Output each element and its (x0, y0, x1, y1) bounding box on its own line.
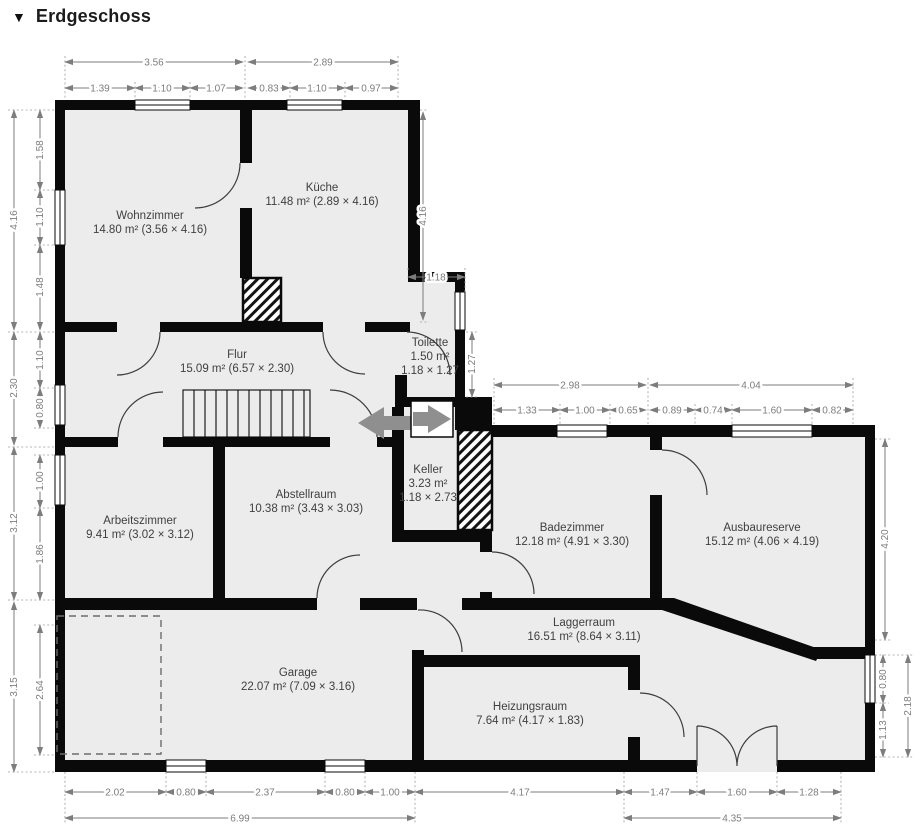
chimney-hatch (243, 278, 281, 322)
dim-top-sub-3: 0.83 (259, 84, 279, 95)
room-size-keller: 1.18 × 2.73 (399, 492, 457, 504)
dim-right-2: 4.20 (880, 529, 891, 549)
dim-wing-sub-6: 0.82 (822, 406, 842, 417)
room-area-wohnzimmer: 14.80 m² (3.56 × 4.16) (93, 224, 207, 236)
dim-wing-sub-4: 0.74 (703, 406, 723, 417)
room-area-heizungsraum: 7.64 m² (4.17 × 1.83) (476, 715, 584, 727)
dim-left-1: 2.30 (9, 378, 20, 398)
room-area-garage: 22.07 m² (7.09 × 3.16) (241, 681, 355, 693)
dim-top-sub-1: 1.10 (152, 84, 172, 95)
dim-left-3: 3.15 (9, 677, 20, 697)
dim-bottom-2: 2.37 (255, 788, 275, 799)
room-label-kueche: Küche (306, 182, 339, 194)
dim-top-0: 3.56 (144, 58, 164, 69)
floorplan-page: ▼ Erdgeschoss (0, 0, 920, 833)
room-label-flur: Flur (227, 349, 247, 361)
dim-top-1: 2.89 (313, 58, 333, 69)
dim-bottom-4: 1.00 (380, 788, 400, 799)
room-area-abstellraum: 10.38 m² (3.43 × 3.03) (249, 503, 363, 515)
dim-bottom-6: 1.47 (650, 788, 670, 799)
room-area-flur: 15.09 m² (6.57 × 2.30) (180, 363, 294, 375)
dim-left-sub-5: 1.00 (35, 471, 46, 491)
dim-left-0: 4.16 (9, 210, 20, 230)
dim-toilette-width: 1.18 (426, 273, 446, 284)
room-label-abstellraum: Abstellraum (276, 489, 337, 501)
cellar-entry-symbol (411, 401, 453, 437)
dim-right-5: 2.18 (903, 696, 914, 716)
dim-bottom-1: 0.80 (176, 788, 196, 799)
dim-bottom-5: 4.17 (510, 788, 530, 799)
collapse-triangle-icon[interactable]: ▼ (12, 9, 26, 25)
dim-right-0: 4.16 (418, 206, 429, 226)
dim-top-sub-5: 0.97 (361, 84, 381, 95)
dim-left-sub-1: 1.10 (35, 207, 46, 227)
dim-bottom-7: 1.60 (727, 788, 747, 799)
dim-left-sub-6: 1.86 (35, 544, 46, 564)
floorplan-drawing: 3.56 2.89 1.39 1.10 1.07 0.83 1.10 0.97 … (0, 0, 920, 833)
dim-wing-sub-1: 1.00 (575, 406, 595, 417)
dim-wing-top-1: 4.04 (741, 381, 761, 392)
room-label-badezimmer: Badezimmer (540, 522, 605, 534)
dim-left-2: 3.12 (9, 513, 20, 533)
dim-bottom-8: 1.28 (799, 788, 819, 799)
room-area-ausbaureserve: 15.12 m² (4.06 × 4.19) (705, 536, 819, 548)
dim-wing-sub-3: 0.89 (662, 406, 682, 417)
keller-hatched-wall (458, 430, 492, 530)
room-area-keller: 3.23 m² (409, 478, 448, 490)
dim-left-sub-7: 2.64 (35, 680, 46, 700)
room-label-ausbaureserve: Ausbaureserve (723, 522, 800, 534)
dim-left-sub-4: 0.80 (35, 398, 46, 418)
dim-top-sub-4: 1.10 (307, 84, 327, 95)
dim-bottom-total-0: 6.99 (230, 814, 250, 825)
room-area-toilette: 1.50 m² (411, 351, 450, 363)
room-label-laggerraum: Laggerraum (553, 617, 615, 629)
room-label-heizungsraum: Heizungsraum (493, 701, 567, 713)
dim-top-sub-2: 1.07 (206, 84, 226, 95)
dim-right-3: 0.80 (878, 669, 889, 689)
room-label-garage: Garage (279, 667, 317, 679)
room-area-laggerraum: 16.51 m² (8.64 × 3.11) (527, 631, 640, 643)
dim-bottom-total-1: 4.35 (722, 814, 742, 825)
dim-wing-top-0: 2.98 (560, 381, 580, 392)
floor-title-bar: ▼ Erdgeschoss (12, 6, 151, 27)
page-title: Erdgeschoss (36, 6, 151, 27)
room-area-kueche: 11.48 m² (2.89 × 4.16) (265, 196, 378, 208)
dim-wing-sub-2: 0.65 (618, 406, 638, 417)
dim-right-1: 1.27 (467, 354, 478, 374)
room-area-badezimmer: 12.18 m² (4.91 × 3.30) (515, 536, 629, 548)
room-area-arbeitszimmer: 9.41 m² (3.02 × 3.12) (86, 529, 194, 541)
room-size-toilette: 1.18 × 1.27 (401, 365, 459, 377)
dim-right-4: 1.13 (878, 720, 889, 740)
dim-top-sub-0: 1.39 (90, 84, 110, 95)
dim-left-sub-0: 1.58 (35, 140, 46, 160)
room-label-toilette: Toilette (412, 337, 448, 349)
room-label-keller: Keller (413, 464, 443, 476)
dim-left-sub-3: 1.10 (35, 350, 46, 370)
room-label-arbeitszimmer: Arbeitszimmer (103, 515, 177, 527)
dim-wing-sub-5: 1.60 (762, 406, 782, 417)
dim-bottom-3: 0.80 (335, 788, 355, 799)
dim-bottom-0: 2.02 (105, 788, 125, 799)
room-label-wohnzimmer: Wohnzimmer (116, 210, 184, 222)
dim-left-sub-2: 1.48 (35, 277, 46, 297)
dim-wing-sub-0: 1.33 (517, 406, 537, 417)
